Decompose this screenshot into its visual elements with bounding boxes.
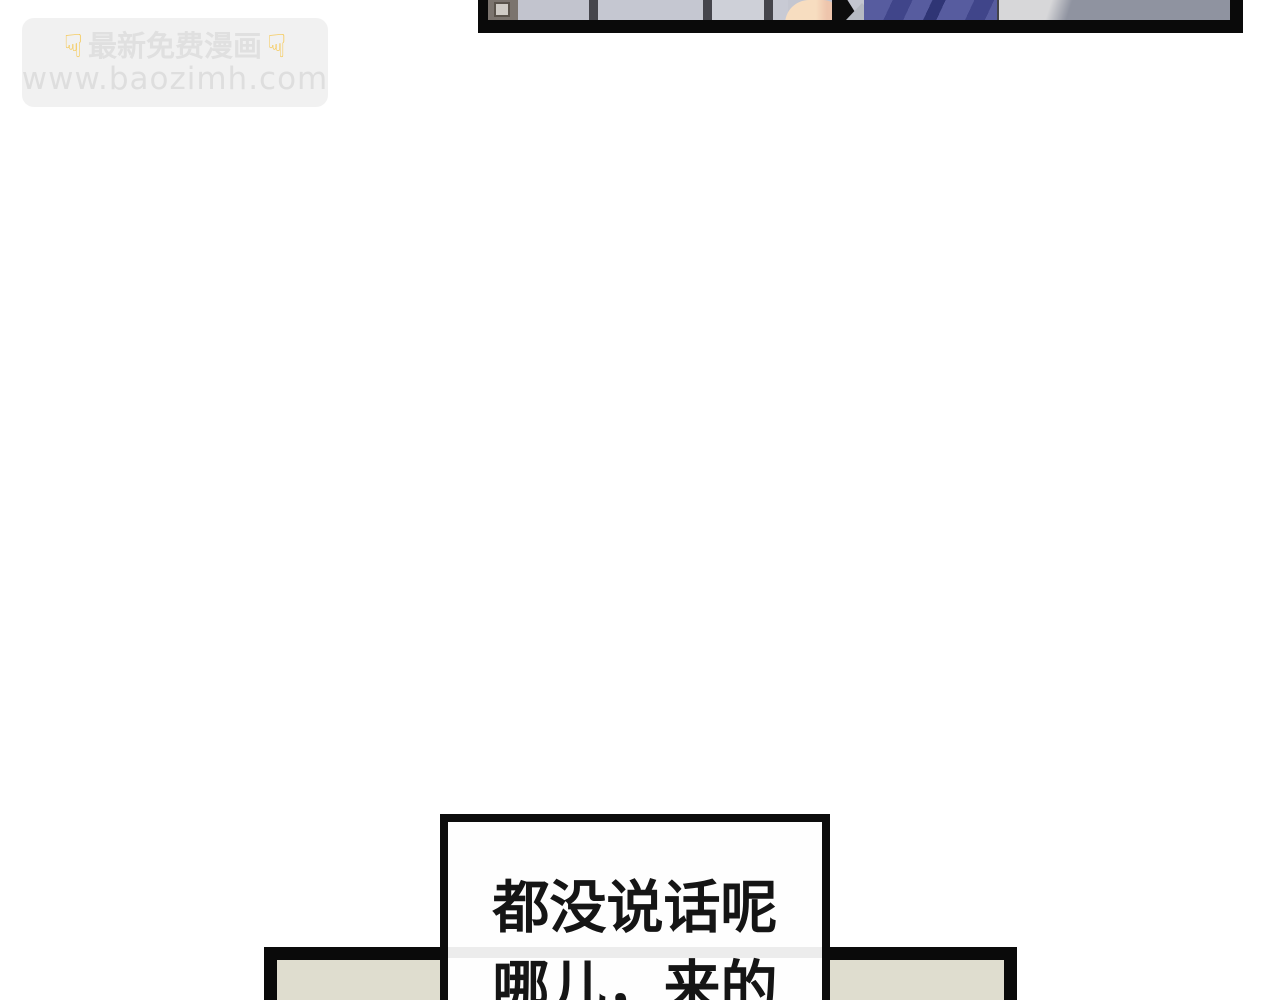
speech-line-2: 哪儿，来的 <box>448 948 822 1000</box>
speech-line-1: 都没说话呢 <box>448 868 822 948</box>
point-down-emoji: ☟ <box>267 30 286 62</box>
comic-panel-top-artwork <box>488 0 1230 20</box>
comic-panel-top-sliver <box>478 0 1243 33</box>
wall-divider <box>703 0 712 20</box>
wall-divider <box>764 0 773 20</box>
wall-end-edge <box>997 0 999 20</box>
watermark-title: 最新免费漫画 <box>88 32 262 61</box>
point-down-emoji: ☟ <box>64 30 83 62</box>
speech-bubble-text: 都没说话呢 哪儿，来的 <box>448 868 822 1000</box>
wall-end-shape <box>997 0 1230 20</box>
watermark-badge: ☟ 最新免费漫画 ☟ www.baozimh.com <box>22 18 328 107</box>
wall-cell <box>598 0 703 20</box>
wall-divider <box>589 0 598 20</box>
wall-cell <box>712 0 764 20</box>
wall-cell <box>518 0 589 20</box>
watermark-url: www.baozimh.com <box>22 64 329 95</box>
window-frame-shape <box>488 0 518 20</box>
watermark-line1: ☟ 最新免费漫画 ☟ <box>64 30 287 62</box>
window-pane-shape <box>494 2 510 17</box>
character-jacket-shape <box>864 0 997 20</box>
speech-bubble: 都没说话呢 哪儿，来的 <box>440 814 830 1000</box>
